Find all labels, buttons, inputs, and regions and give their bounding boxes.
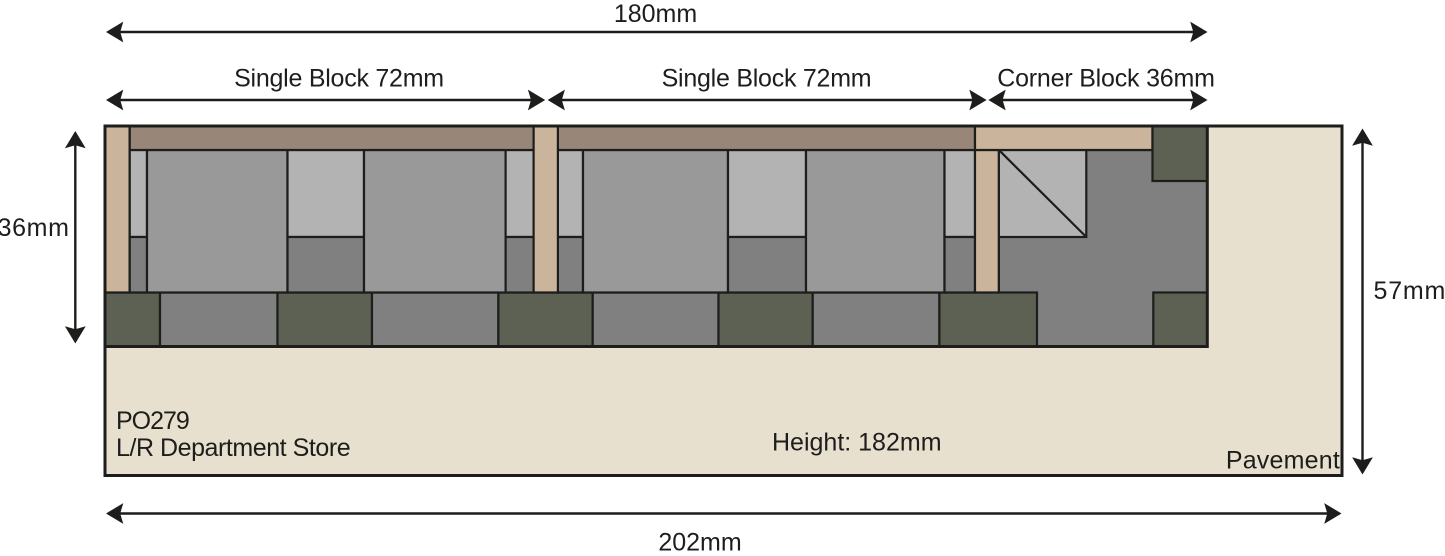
svg-text:57mm: 57mm: [1374, 277, 1445, 305]
svg-text:36mm: 36mm: [0, 214, 70, 242]
svg-text:180mm: 180mm: [614, 0, 697, 28]
svg-text:Height: 182mm: Height: 182mm: [772, 429, 942, 457]
svg-text:Single Block 72mm: Single Block 72mm: [662, 65, 872, 93]
svg-text:Corner Block 36mm: Corner Block 36mm: [997, 65, 1215, 93]
svg-text:Pavement: Pavement: [1226, 447, 1340, 475]
svg-text:Single Block 72mm: Single Block 72mm: [234, 65, 444, 93]
svg-text:202mm: 202mm: [658, 529, 741, 556]
svg-text:L/R Department Store: L/R Department Store: [116, 434, 350, 462]
svg-text:PO279: PO279: [116, 407, 189, 435]
